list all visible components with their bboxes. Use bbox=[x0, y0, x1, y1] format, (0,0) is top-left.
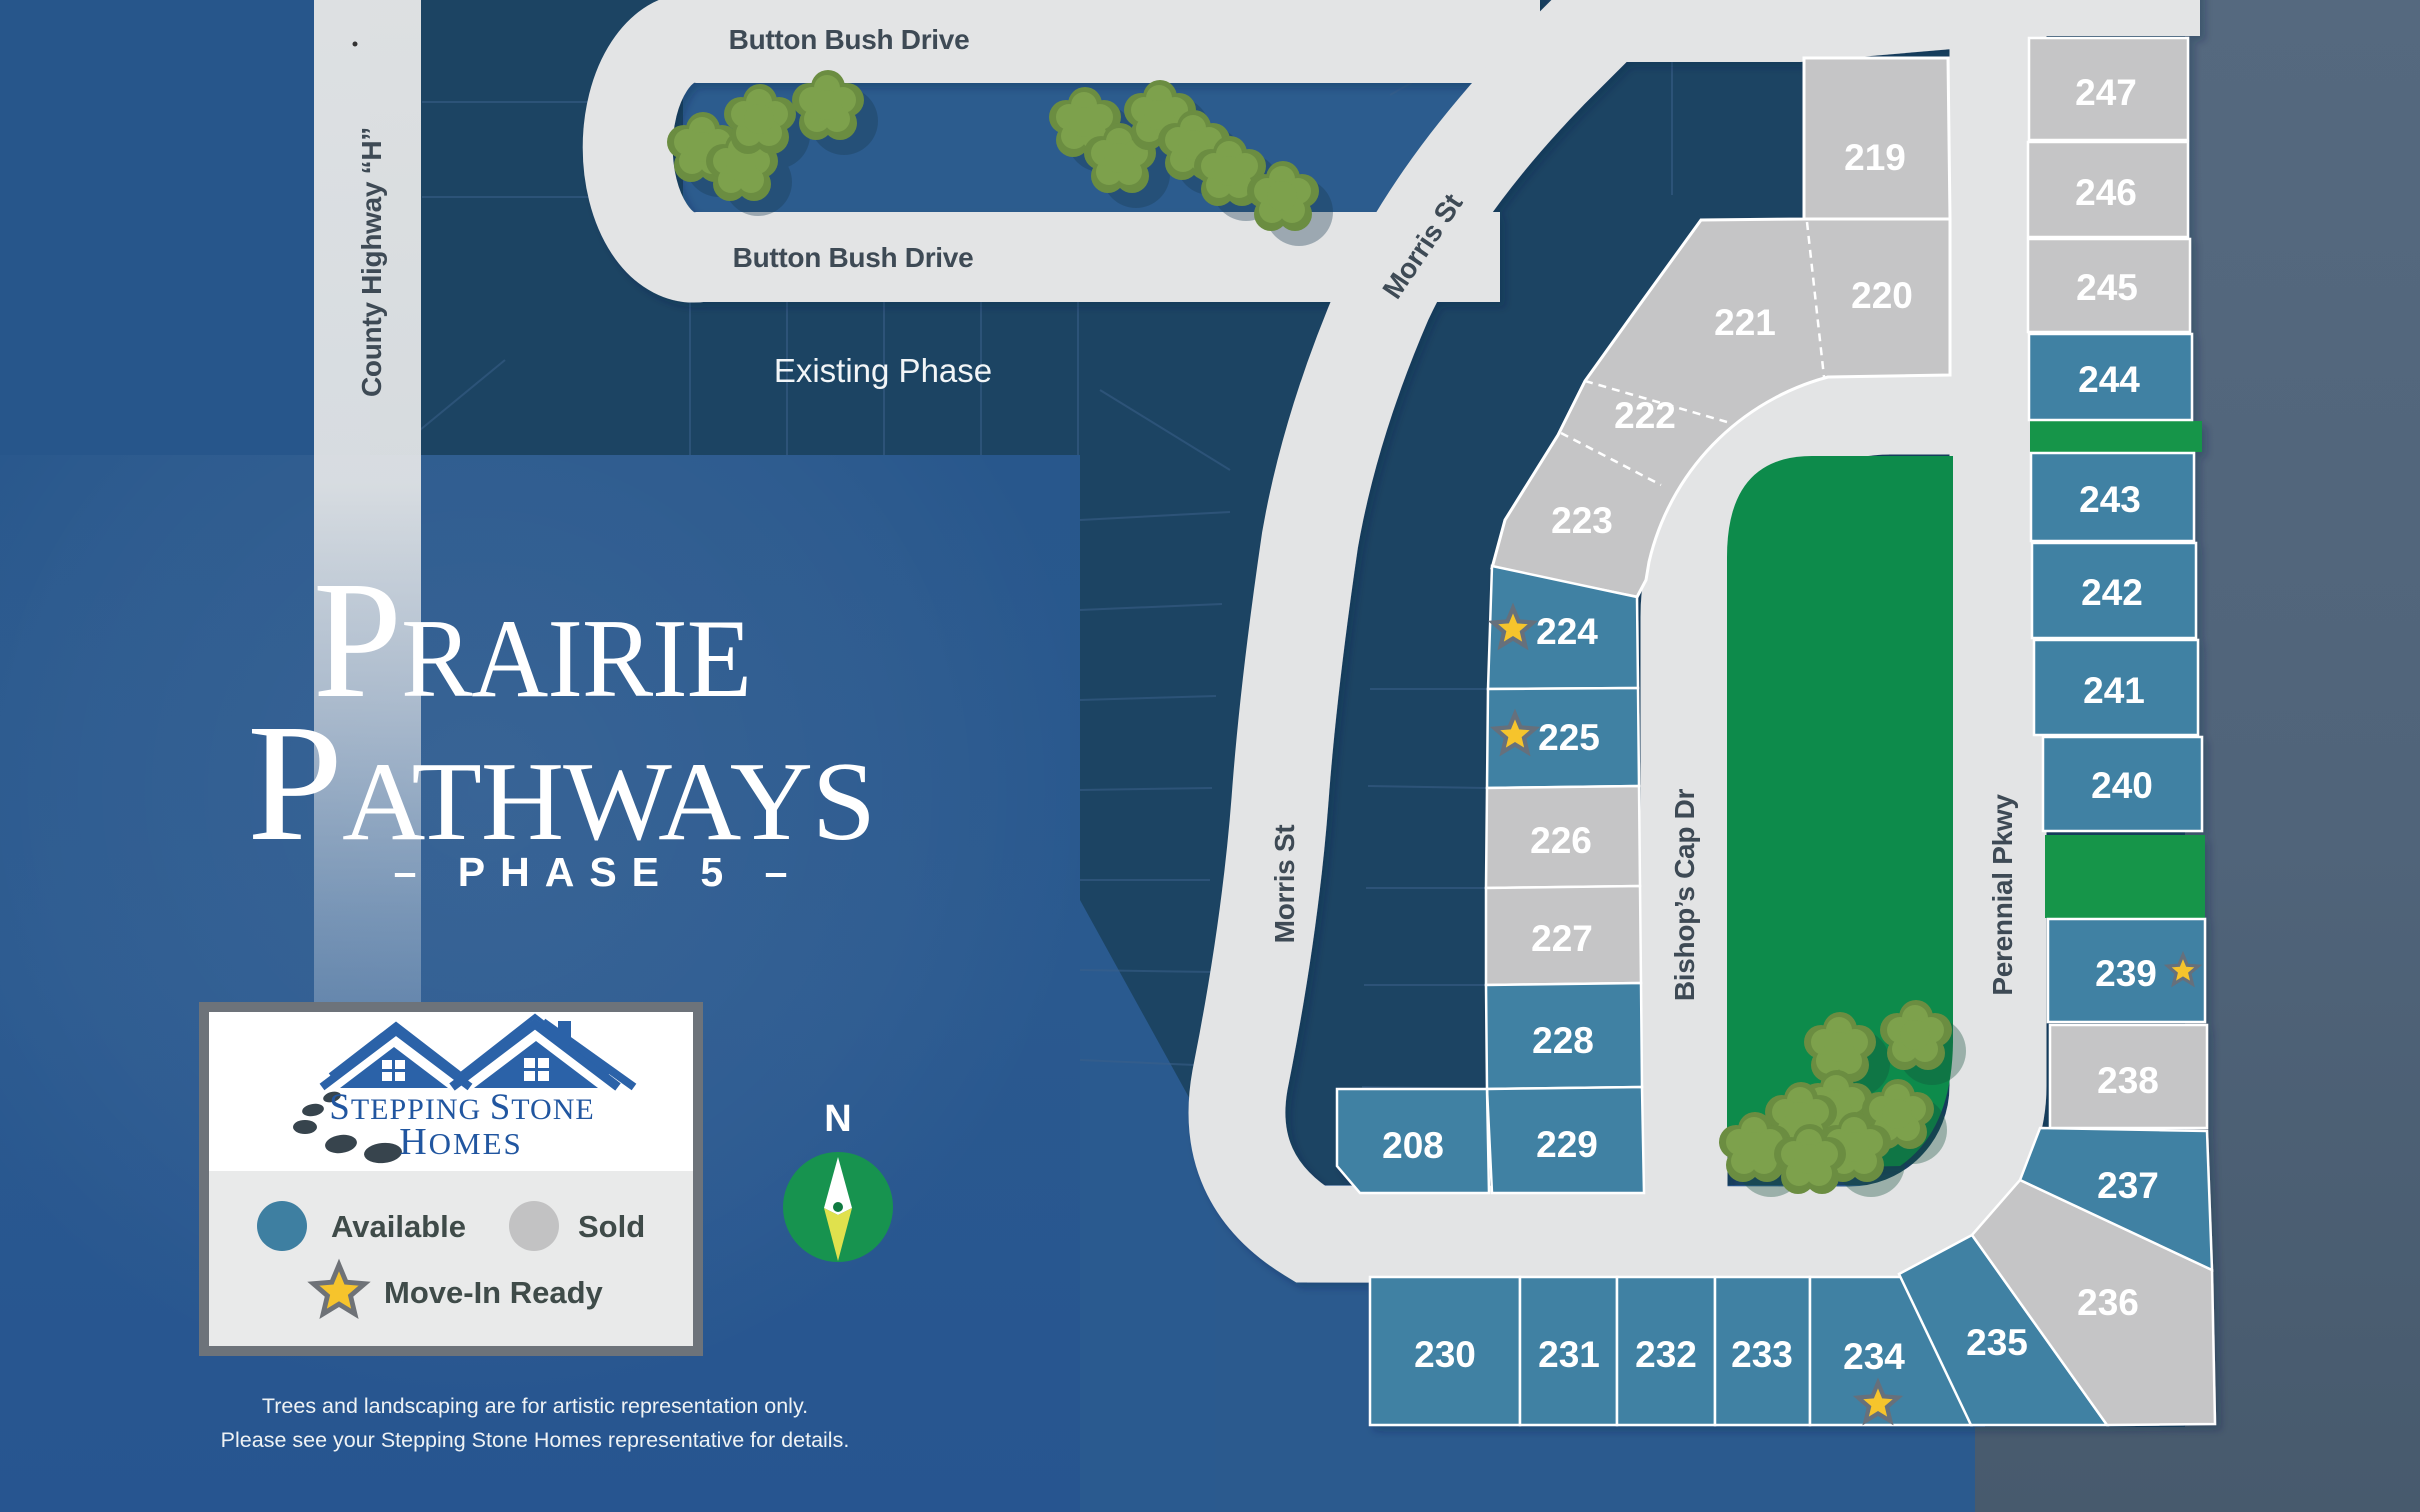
svg-text:242: 242 bbox=[2081, 572, 2143, 613]
svg-text:Sold: Sold bbox=[578, 1209, 645, 1244]
svg-text:230: 230 bbox=[1414, 1334, 1476, 1375]
svg-text:219: 219 bbox=[1844, 137, 1906, 178]
svg-text:243: 243 bbox=[2079, 479, 2141, 520]
svg-text:227: 227 bbox=[1531, 918, 1593, 959]
svg-text:233: 233 bbox=[1731, 1334, 1793, 1375]
svg-text:Trees and landscaping are for: Trees and landscaping are for artistic r… bbox=[262, 1394, 808, 1418]
svg-text:HOMES: HOMES bbox=[399, 1121, 523, 1163]
svg-text:226: 226 bbox=[1530, 820, 1592, 861]
svg-text:Please see your Stepping Stone: Please see your Stepping Stone Homes rep… bbox=[221, 1428, 850, 1452]
svg-text:244: 244 bbox=[2078, 359, 2140, 400]
svg-text:231: 231 bbox=[1538, 1334, 1600, 1375]
svg-text:245: 245 bbox=[2076, 267, 2138, 308]
svg-text:220: 220 bbox=[1851, 275, 1913, 316]
svg-text:208: 208 bbox=[1382, 1125, 1444, 1166]
svg-text:246: 246 bbox=[2075, 172, 2137, 213]
svg-text:Perennial Pkwy: Perennial Pkwy bbox=[1987, 794, 2018, 996]
svg-text:238: 238 bbox=[2097, 1060, 2159, 1101]
svg-text:Bishop’s Cap Dr: Bishop’s Cap Dr bbox=[1669, 788, 1700, 1001]
svg-text:239: 239 bbox=[2095, 953, 2157, 994]
svg-text:221: 221 bbox=[1714, 302, 1776, 343]
svg-text:Existing Phase: Existing Phase bbox=[774, 352, 992, 389]
svg-text:222: 222 bbox=[1614, 395, 1676, 436]
svg-text:247: 247 bbox=[2075, 72, 2137, 113]
svg-text:County Highway “H”: County Highway “H” bbox=[356, 127, 387, 397]
svg-text:228: 228 bbox=[1532, 1020, 1594, 1061]
svg-text:236: 236 bbox=[2077, 1282, 2139, 1323]
svg-text:Move-In Ready: Move-In Ready bbox=[384, 1275, 604, 1310]
svg-text:232: 232 bbox=[1635, 1334, 1697, 1375]
svg-text:– PHASE 5 –: – PHASE 5 – bbox=[394, 849, 803, 895]
svg-text:237: 237 bbox=[2097, 1165, 2159, 1206]
svg-text:223: 223 bbox=[1551, 500, 1613, 541]
svg-text:STEPPING STONE: STEPPING STONE bbox=[329, 1087, 594, 1128]
svg-text:229: 229 bbox=[1536, 1124, 1598, 1165]
svg-text:224: 224 bbox=[1536, 611, 1598, 652]
svg-text:241: 241 bbox=[2083, 670, 2145, 711]
svg-text:240: 240 bbox=[2091, 765, 2153, 806]
svg-text:Button Bush Drive: Button Bush Drive bbox=[729, 24, 970, 55]
svg-text:Button Bush Drive: Button Bush Drive bbox=[733, 242, 974, 273]
svg-text:Available: Available bbox=[331, 1209, 466, 1244]
svg-text:235: 235 bbox=[1966, 1322, 2028, 1363]
svg-text:N: N bbox=[824, 1098, 851, 1140]
svg-text:Morris St: Morris St bbox=[1269, 825, 1300, 944]
svg-text:225: 225 bbox=[1538, 717, 1600, 758]
svg-text:234: 234 bbox=[1843, 1336, 1905, 1377]
